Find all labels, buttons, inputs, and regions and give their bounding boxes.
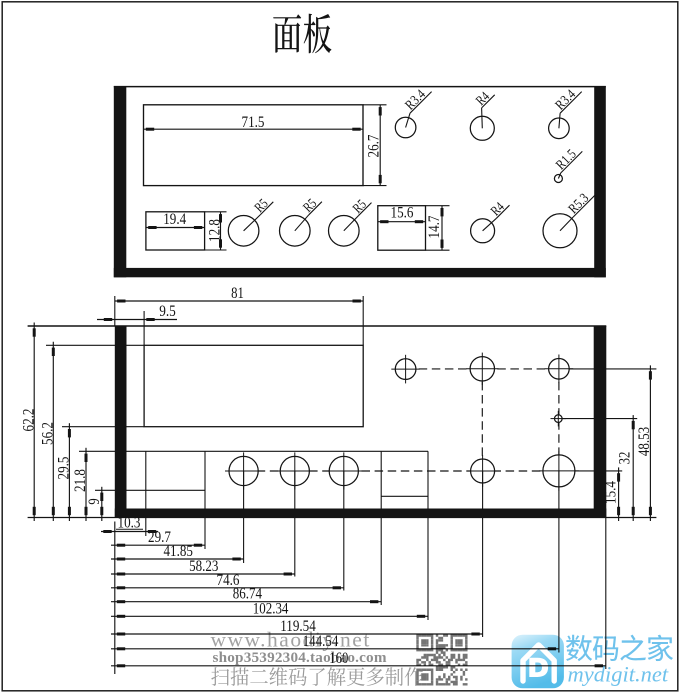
svg-text:R3.4: R3.4 bbox=[552, 86, 578, 112]
svg-text:R5.3: R5.3 bbox=[565, 190, 591, 216]
svg-text:81: 81 bbox=[231, 284, 244, 302]
svg-text:21.8: 21.8 bbox=[71, 469, 89, 492]
svg-text:14.7: 14.7 bbox=[425, 216, 443, 239]
svg-text:102.34: 102.34 bbox=[253, 599, 289, 617]
svg-text:R5: R5 bbox=[300, 196, 319, 215]
svg-text:shop35392304.taobao.com: shop35392304.taobao.com bbox=[213, 649, 387, 666]
svg-text:71.5: 71.5 bbox=[242, 113, 265, 131]
svg-text:9.5: 9.5 bbox=[159, 302, 176, 320]
svg-text:mydigit.net: mydigit.net bbox=[568, 662, 669, 687]
svg-text:19.4: 19.4 bbox=[163, 210, 186, 228]
svg-text:R5: R5 bbox=[251, 196, 270, 215]
svg-text:R1.5: R1.5 bbox=[553, 146, 579, 172]
svg-text:62.2: 62.2 bbox=[19, 409, 37, 432]
svg-text:32: 32 bbox=[615, 452, 633, 465]
svg-text:15.6: 15.6 bbox=[391, 204, 414, 222]
svg-text:www.haodiy.net: www.haodiy.net bbox=[211, 628, 371, 652]
svg-text:29.5: 29.5 bbox=[54, 457, 72, 480]
svg-text:R4: R4 bbox=[473, 89, 492, 108]
svg-text:R3.4: R3.4 bbox=[402, 86, 428, 112]
svg-text:26.7: 26.7 bbox=[364, 135, 382, 158]
svg-text:48.53: 48.53 bbox=[635, 427, 653, 456]
svg-text:R5: R5 bbox=[350, 196, 369, 215]
svg-text:58.23: 58.23 bbox=[189, 557, 218, 575]
svg-text:15.4: 15.4 bbox=[601, 481, 619, 504]
svg-text:9: 9 bbox=[85, 498, 103, 504]
svg-text:12.8: 12.8 bbox=[205, 219, 223, 242]
svg-text:56.2: 56.2 bbox=[38, 422, 56, 445]
svg-text:R4: R4 bbox=[488, 199, 507, 218]
